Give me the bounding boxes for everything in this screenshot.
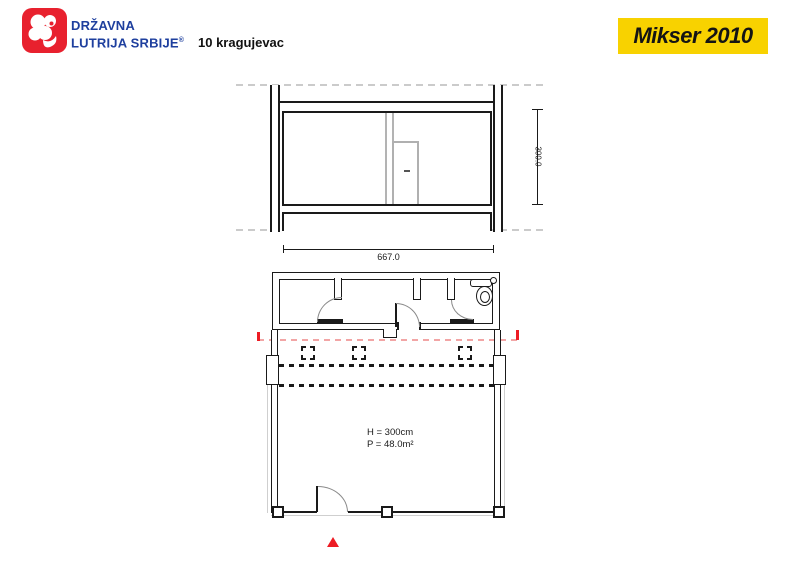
lottery-logo-icon — [21, 7, 68, 54]
toilet-flush-knob — [490, 277, 497, 284]
entrance-door-swing-arc — [318, 486, 348, 512]
room-annotation: H = 300cm P = 48.0m² — [367, 427, 414, 451]
facade-column — [381, 506, 393, 518]
section-base-band — [282, 212, 492, 231]
page-title: 10 kragujevac — [198, 35, 284, 50]
column-marker — [301, 346, 315, 360]
section-door — [392, 141, 419, 204]
facade-column — [272, 506, 284, 518]
column-marker — [352, 346, 366, 360]
vertical-dim-tick-top — [532, 109, 543, 110]
section-left-column — [270, 85, 280, 232]
bottom-wall-segment-right — [348, 511, 495, 513]
section-beam-line — [280, 101, 493, 103]
pilaster-left — [266, 355, 279, 385]
event-badge: Mikser 2010 — [618, 18, 768, 54]
lottery-logo-text: DRŽAVNA LUTRIJA SRBIJE® — [71, 18, 184, 50]
toilet-bowl-inner — [480, 291, 490, 303]
red-tick-right — [516, 330, 519, 340]
vertical-dimension-label: 300.0 — [534, 137, 543, 177]
logo-line2: LUTRIJA SRBIJE® — [71, 33, 184, 50]
canopy-dashed-line-1 — [279, 364, 494, 367]
vertical-dim-tick-bottom — [532, 204, 543, 205]
horizontal-dimension-line — [283, 249, 494, 250]
jamb-stub-middle — [413, 278, 421, 300]
entrance-arrow — [327, 537, 339, 547]
interior-wall-pier — [383, 329, 397, 338]
red-tick-left — [257, 332, 260, 341]
registered-mark: ® — [179, 37, 184, 44]
pilaster-right — [493, 355, 506, 385]
right-wall-gray-line — [504, 385, 505, 513]
column-marker — [458, 346, 472, 360]
jamb-stub-right — [447, 278, 455, 300]
section-right-column — [493, 85, 503, 232]
section-panel-joint-line — [385, 113, 387, 204]
red-reference-line — [258, 339, 518, 341]
horizontal-dimension-label: 667.0 — [283, 252, 494, 262]
slide: DRŽAVNA LUTRIJA SRBIJE® 10 kragujevac Mi… — [0, 0, 800, 565]
canopy-dashed-line-2 — [279, 384, 494, 387]
facade-column — [493, 506, 505, 518]
ceiling-height-label: H = 300cm — [367, 427, 414, 439]
area-label: P = 48.0m² — [367, 439, 414, 451]
section-wall-panel — [282, 111, 492, 206]
logo-line1: DRŽAVNA — [71, 18, 184, 33]
left-wall-gray-line — [267, 385, 268, 513]
section-panel-joint-line-2 — [392, 113, 394, 142]
door-handle — [404, 170, 410, 172]
